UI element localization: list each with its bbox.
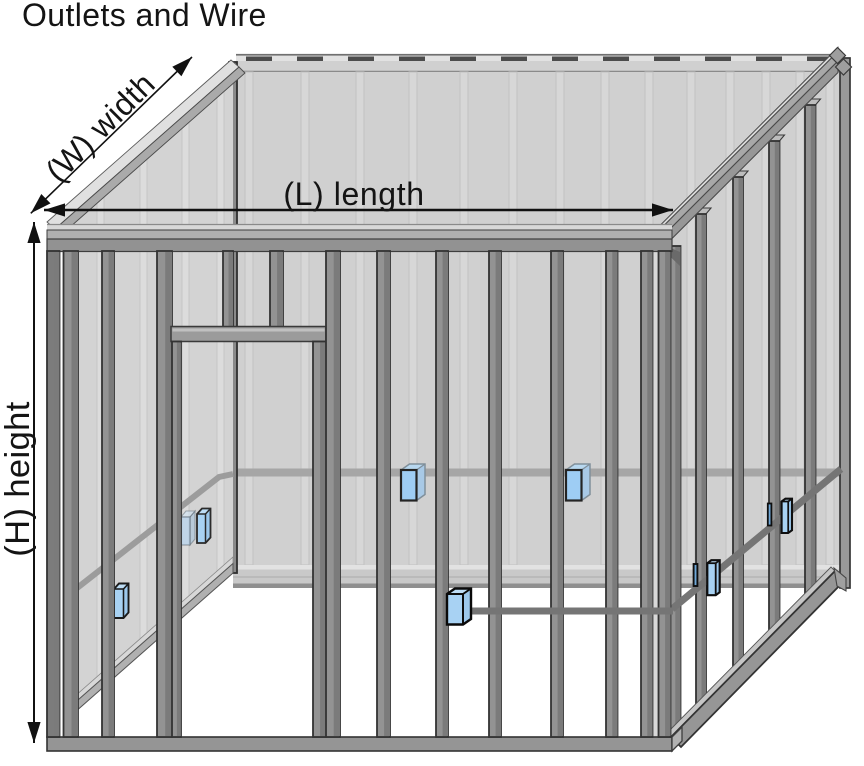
svg-text:(L) length: (L) length xyxy=(283,176,424,212)
svg-text:(H) height: (H) height xyxy=(0,401,37,556)
svg-text:Outlets and Wire: Outlets and Wire xyxy=(22,0,267,33)
